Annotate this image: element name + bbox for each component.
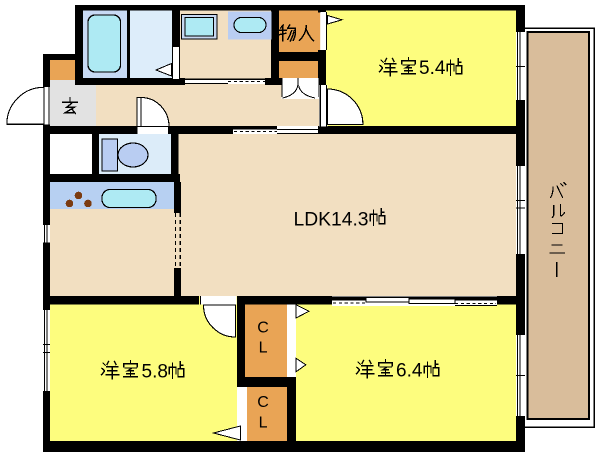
svg-text:C: C <box>257 319 269 336</box>
svg-text:LDK14.3: LDK14.3 <box>294 209 369 230</box>
svg-text:L: L <box>259 415 268 432</box>
svg-text:5.4: 5.4 <box>419 58 446 79</box>
svg-text:5.8: 5.8 <box>142 361 168 382</box>
svg-text:6.4: 6.4 <box>396 360 423 381</box>
svg-text:C: C <box>257 394 269 411</box>
svg-text:L: L <box>259 340 268 357</box>
